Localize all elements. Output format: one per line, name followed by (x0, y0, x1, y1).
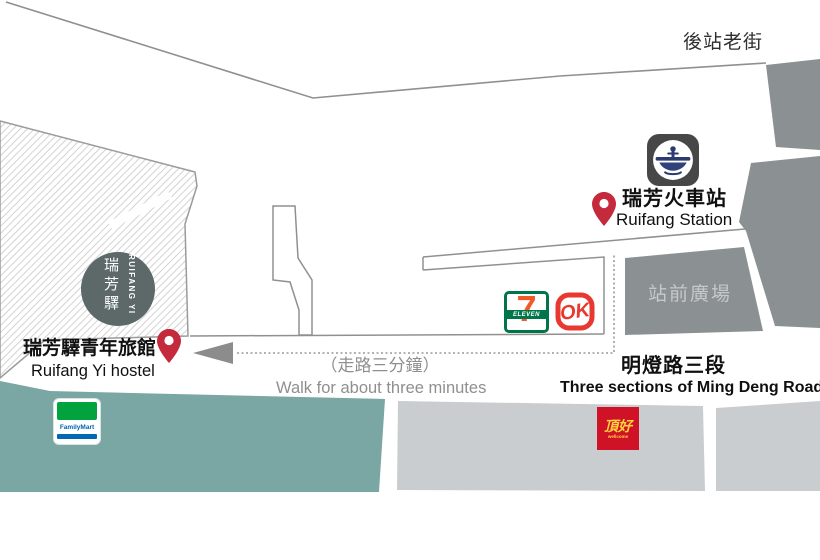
back-street-label: 後站老街 (683, 33, 763, 54)
back-street-road-line (6, 2, 766, 98)
hostel-label-en: Ruifang Yi hostel (31, 362, 155, 380)
wellcome-logo: 頂好 wellcome (597, 407, 639, 450)
walk-arrow-icon (193, 342, 233, 364)
station-label-en: Ruifang Station (616, 211, 732, 230)
road-edge-lower (190, 334, 604, 336)
family-mart-blue-bar (57, 434, 97, 439)
road-label-zh: 明燈路三段 (621, 355, 726, 377)
light-road-block-right (716, 401, 820, 491)
family-mart-word: FamilyMart (57, 424, 97, 431)
building-outline (273, 206, 312, 335)
hostel-label-zh: 瑞芳驛青年旅館 (23, 339, 156, 360)
hostel-badge-en: RUIFANG YI (127, 254, 136, 324)
wellcome-en: wellcome (608, 434, 628, 439)
seven-eleven-word: ELEVEN (513, 312, 540, 318)
tra-railway-logo-icon (652, 139, 694, 181)
ok-mart-word: OK (559, 299, 593, 325)
seven-eleven-band: ELEVEN (507, 310, 546, 319)
hostel-pin-icon (157, 329, 181, 363)
family-mart-logo: FamilyMart (53, 398, 101, 445)
light-road-block-center (397, 401, 705, 491)
ok-mart-logo: OK (555, 292, 595, 331)
family-mart-green-bar (57, 402, 97, 420)
station-pin-icon (592, 192, 616, 226)
station-label-zh: 瑞芳火車站 (622, 188, 727, 210)
walk-label-en: Walk for about three minutes (276, 379, 480, 397)
train-station-icon (647, 134, 699, 186)
ruifang-location-map: 7 ELEVEN OK FamilyMart 頂好 wellcome 瑞芳驛 R… (0, 0, 820, 560)
plaza-label: 站前廣場 (648, 285, 732, 306)
seven-eleven-logo: 7 ELEVEN (504, 291, 549, 333)
walk-label-zh: （走路三分鐘） (315, 357, 445, 376)
road-label-en: Three sections of Ming Deng Road (560, 379, 820, 397)
block-top-right (766, 59, 820, 150)
hostel-badge-zh: 瑞芳驛 (101, 257, 122, 323)
wellcome-zh: 頂好 (604, 419, 632, 433)
map-canvas (0, 0, 820, 560)
